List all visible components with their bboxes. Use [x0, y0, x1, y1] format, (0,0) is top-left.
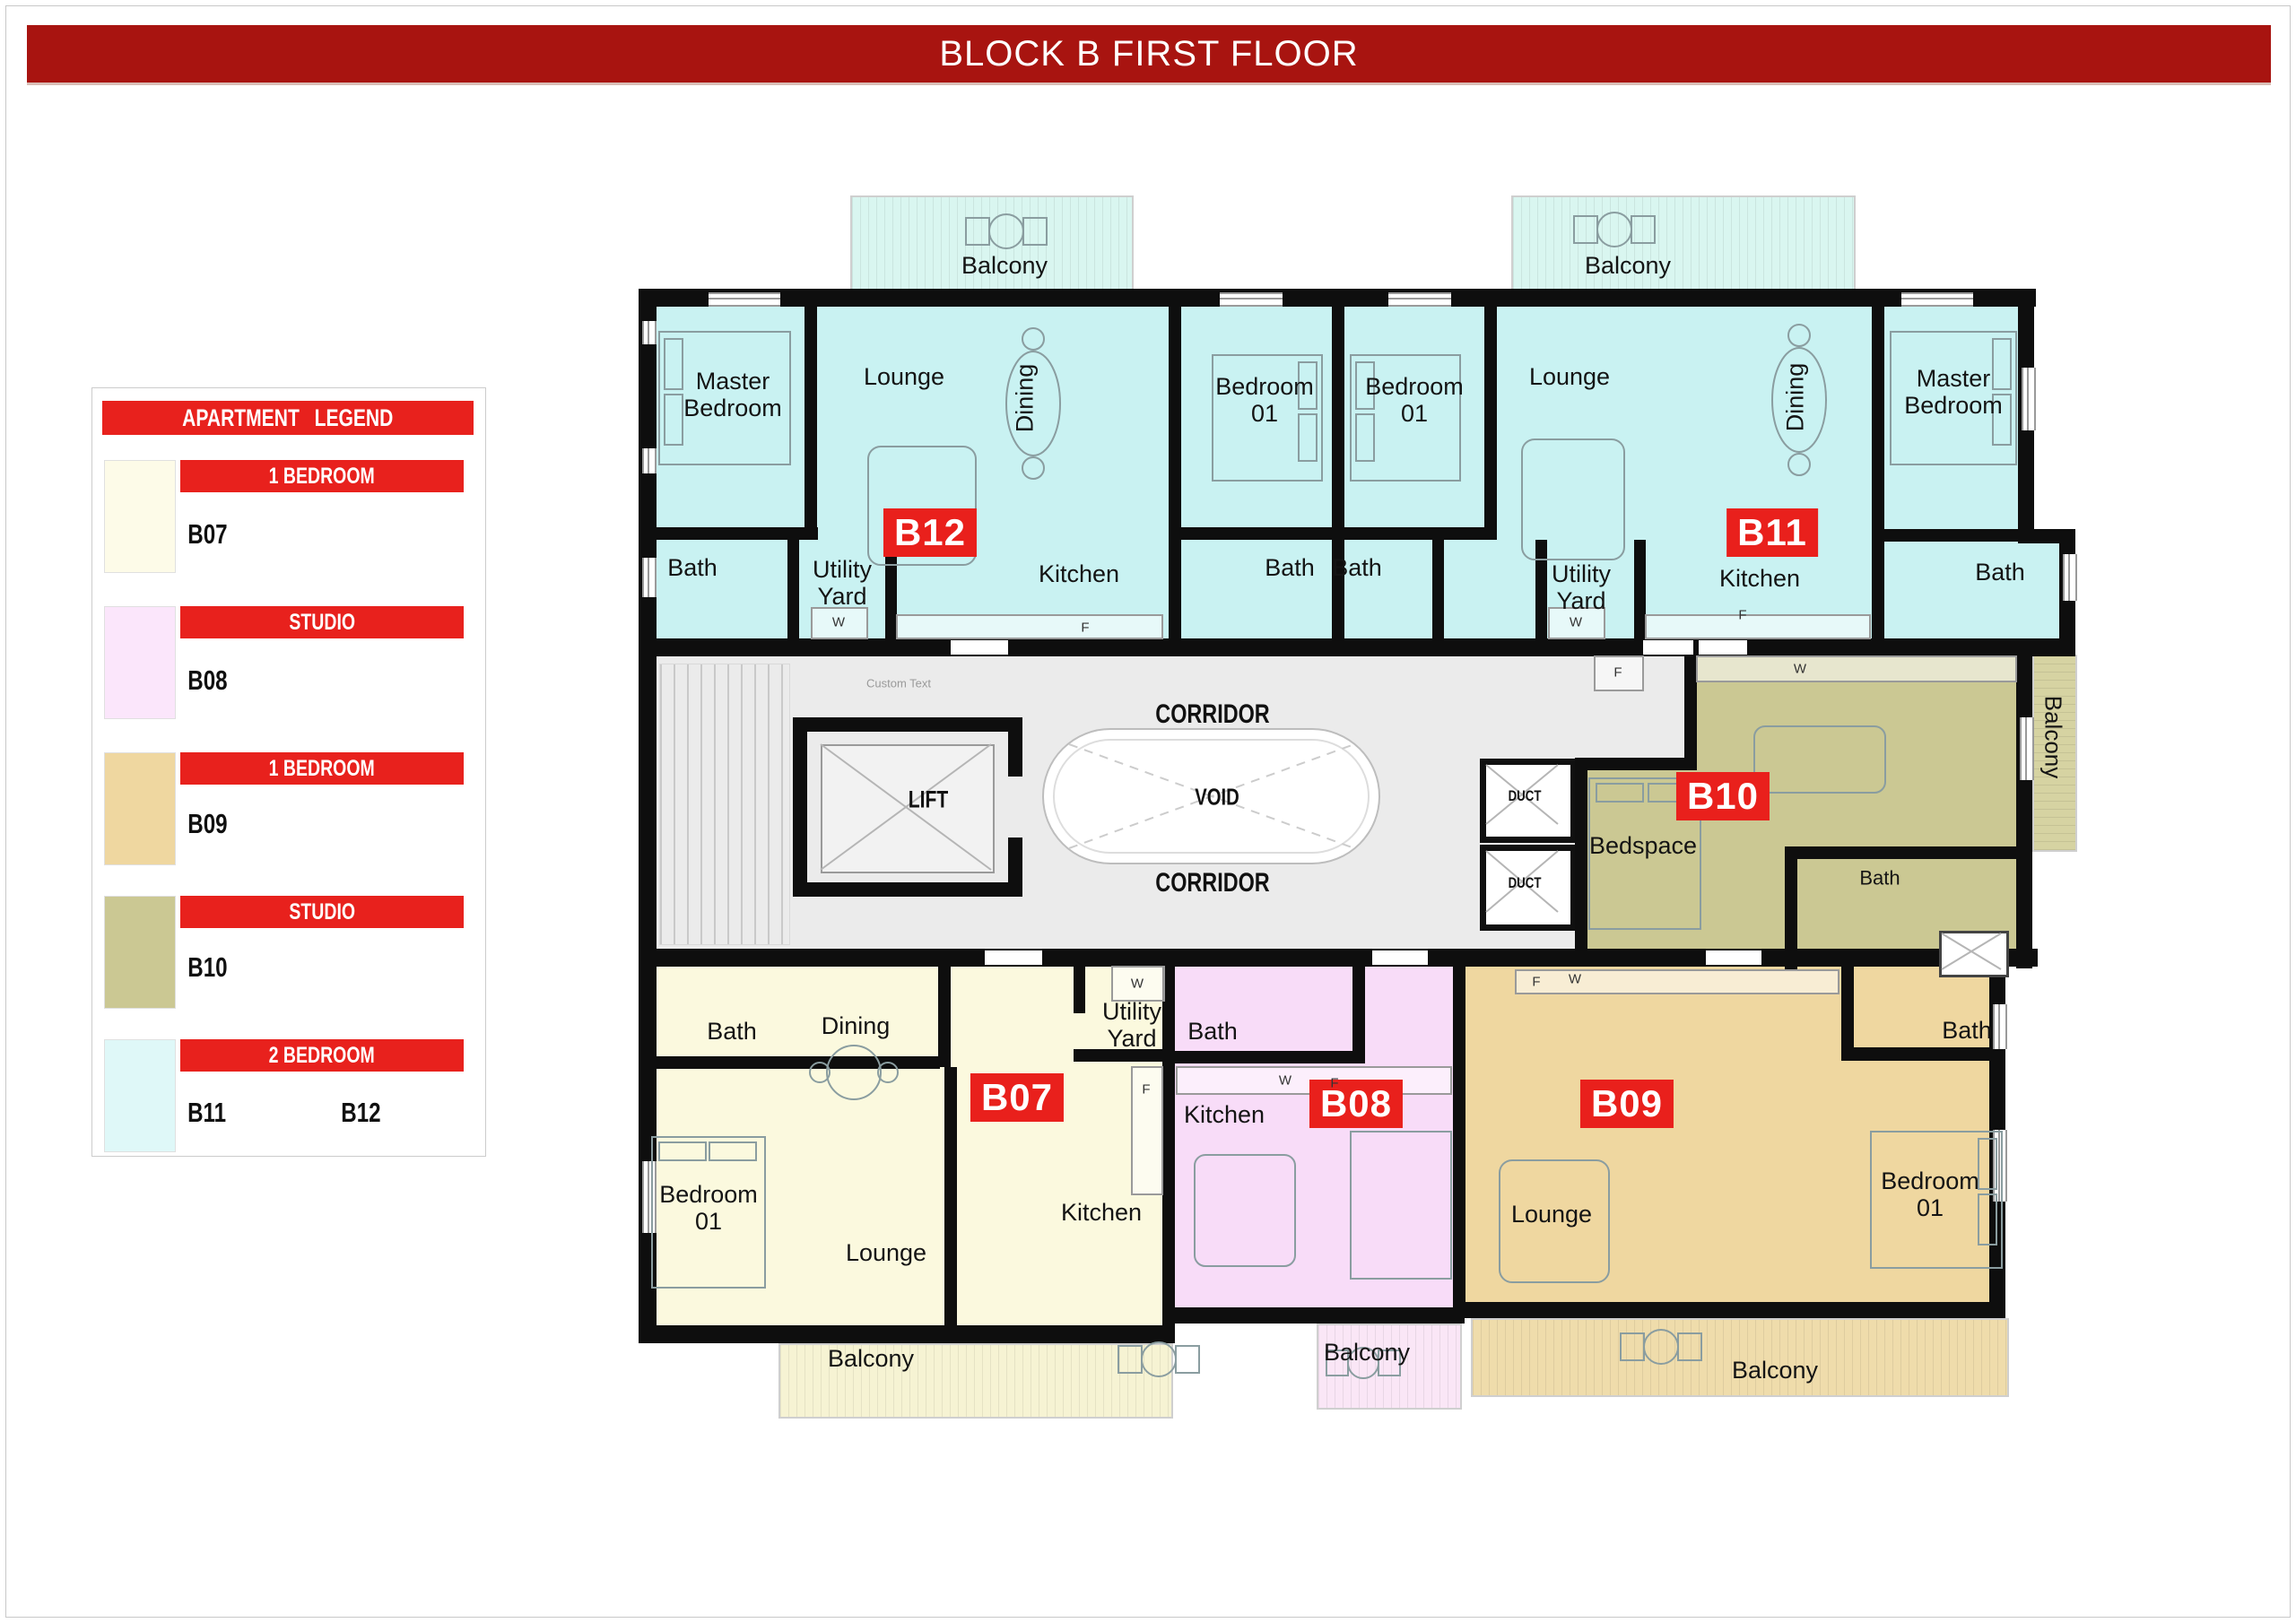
label-washer-b07: W	[1131, 976, 1144, 992]
label-washer-b12: W	[832, 615, 845, 630]
label-corridor-top: CORRIDOR	[1139, 699, 1285, 730]
legend-code-b08: B08	[182, 664, 233, 697]
window	[1993, 1004, 2007, 1049]
unit-badge-b12: B12	[883, 508, 977, 557]
legend-swatch-b07	[104, 460, 176, 573]
label-b12-utility-yard: Utility Yard	[793, 556, 891, 610]
label-b12-kitchen: Kitchen	[1039, 560, 1119, 587]
label-b08-kitchen: Kitchen	[1184, 1101, 1265, 1128]
legend-type-studio: STUDIO	[180, 606, 464, 638]
label-b12-dining: Dining	[1012, 364, 1039, 433]
wall	[1175, 1051, 1356, 1063]
label-b11-balcony: Balcony	[1585, 252, 1671, 279]
label-b12-lounge: Lounge	[864, 363, 944, 390]
label-b07-balcony: Balcony	[828, 1345, 914, 1372]
wall	[639, 527, 818, 540]
label-b09-balcony: Balcony	[1732, 1357, 1818, 1384]
label-b11-bath-2: Bath	[1975, 559, 2025, 586]
unit-badge-b09: B09	[1580, 1080, 1674, 1128]
label-b07-bedroom-01: Bedroom 01	[650, 1181, 767, 1235]
label-duct-1: DUCT	[1503, 787, 1545, 805]
balcony-b11	[1511, 195, 1856, 294]
window	[642, 448, 657, 473]
wall	[1352, 967, 1365, 1063]
legend-swatch-b10	[104, 896, 176, 1009]
label-b12-bedroom-01: Bedroom 01	[1206, 373, 1323, 427]
label-fridge-b09: F	[1532, 975, 1540, 990]
label-b11-utility-yard: Utility Yard	[1532, 560, 1631, 614]
window	[1388, 292, 1451, 307]
label-fridge-b10: F	[1613, 665, 1622, 681]
window	[2020, 717, 2034, 780]
label-stairs-note: Custom Text	[866, 677, 931, 690]
wall	[1575, 758, 1697, 770]
label-washer-b10: W	[1794, 662, 1806, 677]
unit-badge-b08: B08	[1309, 1080, 1403, 1128]
label-washer-b08: W	[1279, 1073, 1291, 1089]
label-b07-lounge: Lounge	[846, 1239, 926, 1266]
closet-box	[1939, 931, 2009, 977]
label-b07-bath: Bath	[707, 1018, 757, 1045]
lift-wall	[793, 717, 1022, 732]
window	[1220, 292, 1283, 307]
wall	[804, 307, 817, 538]
label-b09-lounge: Lounge	[1511, 1201, 1592, 1228]
apartment-legend: APARTMENT LEGEND 1 BEDROOM B07 STUDIO B0…	[91, 387, 486, 1157]
lift-wall	[1008, 717, 1022, 777]
wall	[938, 967, 951, 1067]
label-lift: LIFT	[903, 786, 954, 814]
wall	[2016, 656, 2032, 968]
wall	[1872, 529, 2018, 542]
wall	[1458, 1302, 2005, 1318]
window	[642, 558, 657, 597]
window	[642, 321, 657, 344]
legend-header: APARTMENT LEGEND	[102, 401, 474, 435]
balcony-b08	[1317, 1324, 1462, 1410]
label-b10-balcony: Balcony	[2039, 696, 2067, 779]
wall	[1169, 527, 1497, 540]
label-b11-bath: Bath	[1332, 554, 1382, 581]
lift-wall	[793, 882, 1022, 897]
label-b08-balcony: Balcony	[1324, 1339, 1410, 1366]
wall	[1453, 967, 1465, 1315]
wall	[1785, 846, 1797, 970]
label-washer-b09: W	[1569, 972, 1581, 987]
label-b12-bath-2: Bath	[1265, 554, 1315, 581]
wall	[1575, 758, 1587, 949]
legend-code-b11: B11	[182, 1097, 231, 1129]
wall	[944, 1067, 957, 1325]
wall	[1634, 540, 1646, 649]
label-b07-utility-yard: Utility Yard	[1083, 998, 1181, 1052]
legend-code-b09: B09	[182, 808, 233, 840]
wall	[639, 1325, 1175, 1343]
wall	[1841, 967, 1854, 1055]
lift-wall	[1008, 838, 1022, 897]
wall	[639, 638, 2075, 656]
legend-swatch-b08	[104, 606, 176, 719]
label-b08-bath: Bath	[1187, 1018, 1238, 1045]
legend-code-b12: B12	[335, 1097, 387, 1129]
label-washer-b11: W	[1570, 615, 1582, 630]
title-bar: BLOCK B FIRST FLOOR	[27, 25, 2271, 85]
door-opening	[1643, 640, 1693, 655]
door-opening	[951, 640, 1008, 655]
legend-swatch-b09	[104, 752, 176, 865]
legend-type-studio-2: STUDIO	[180, 896, 464, 928]
wall	[1841, 1047, 2005, 1061]
wall	[639, 289, 2036, 307]
room-b11-bath-bump	[2018, 542, 2059, 640]
unit-badge-b10: B10	[1676, 772, 1770, 820]
floor-plan-page: BLOCK B FIRST FLOOR	[0, 0, 2296, 1623]
label-b12-balcony: Balcony	[961, 252, 1048, 279]
legend-type-1bedroom: 1 BEDROOM	[180, 460, 464, 492]
label-fridge-b11: F	[1738, 608, 1746, 623]
label-b10-bath: Bath	[1859, 868, 1900, 890]
window	[1993, 1130, 2007, 1202]
legend-type-1bedroom-2: 1 BEDROOM	[180, 752, 464, 785]
label-b11-lounge: Lounge	[1529, 363, 1610, 390]
wall	[1332, 307, 1344, 649]
page-title: BLOCK B FIRST FLOOR	[27, 25, 2271, 82]
label-fridge-b08: F	[1330, 1076, 1338, 1091]
window	[1901, 292, 1973, 307]
window	[2063, 554, 2077, 601]
room-b09	[1465, 967, 1989, 1302]
window	[709, 292, 780, 307]
label-b11-master-bedroom: Master Bedroom	[1877, 365, 2030, 419]
door-opening	[1699, 640, 1747, 655]
wall	[1684, 656, 1697, 758]
label-fridge-b12: F	[1081, 621, 1089, 636]
wall	[1162, 1307, 1465, 1324]
unit-badge-b11: B11	[1726, 508, 1818, 557]
label-fridge-b07: F	[1142, 1082, 1150, 1098]
legend-code-b10: B10	[182, 951, 233, 984]
label-b11-bedroom-01: Bedroom 01	[1356, 373, 1473, 427]
label-b11-dining: Dining	[1782, 363, 1810, 432]
unit-badge-b07: B07	[970, 1073, 1064, 1122]
label-b11-kitchen: Kitchen	[1719, 565, 1800, 592]
label-duct-2: DUCT	[1503, 874, 1545, 892]
door-opening	[1372, 950, 1428, 965]
label-b09-bedroom-01: Bedroom 01	[1872, 1167, 1988, 1221]
legend-code-b07: B07	[182, 518, 233, 551]
wall	[1785, 846, 2027, 859]
door-opening	[1706, 950, 1761, 965]
label-b07-kitchen: Kitchen	[1061, 1199, 1142, 1226]
label-corridor-bottom: CORRIDOR	[1139, 868, 1285, 898]
label-b07-dining: Dining	[822, 1012, 891, 1039]
wall	[1432, 540, 1444, 649]
label-b12-master-bedroom: Master Bedroom	[657, 368, 809, 421]
lift-wall	[793, 717, 807, 897]
label-b10-bedspace: Bedspace	[1589, 832, 1697, 859]
wall	[639, 949, 2038, 967]
balcony-b12	[850, 195, 1134, 294]
wall	[639, 1056, 940, 1069]
label-b12-bath: Bath	[667, 554, 717, 581]
wall	[1169, 307, 1181, 649]
door-opening	[985, 950, 1042, 965]
staircase	[659, 664, 790, 945]
legend-type-2bedroom: 2 BEDROOM	[180, 1039, 464, 1072]
wall	[1872, 307, 1884, 649]
label-void: VOID	[1188, 784, 1246, 811]
legend-swatch-b11-b12	[104, 1039, 176, 1152]
wall	[1484, 307, 1497, 538]
label-b09-bath: Bath	[1942, 1017, 1992, 1044]
